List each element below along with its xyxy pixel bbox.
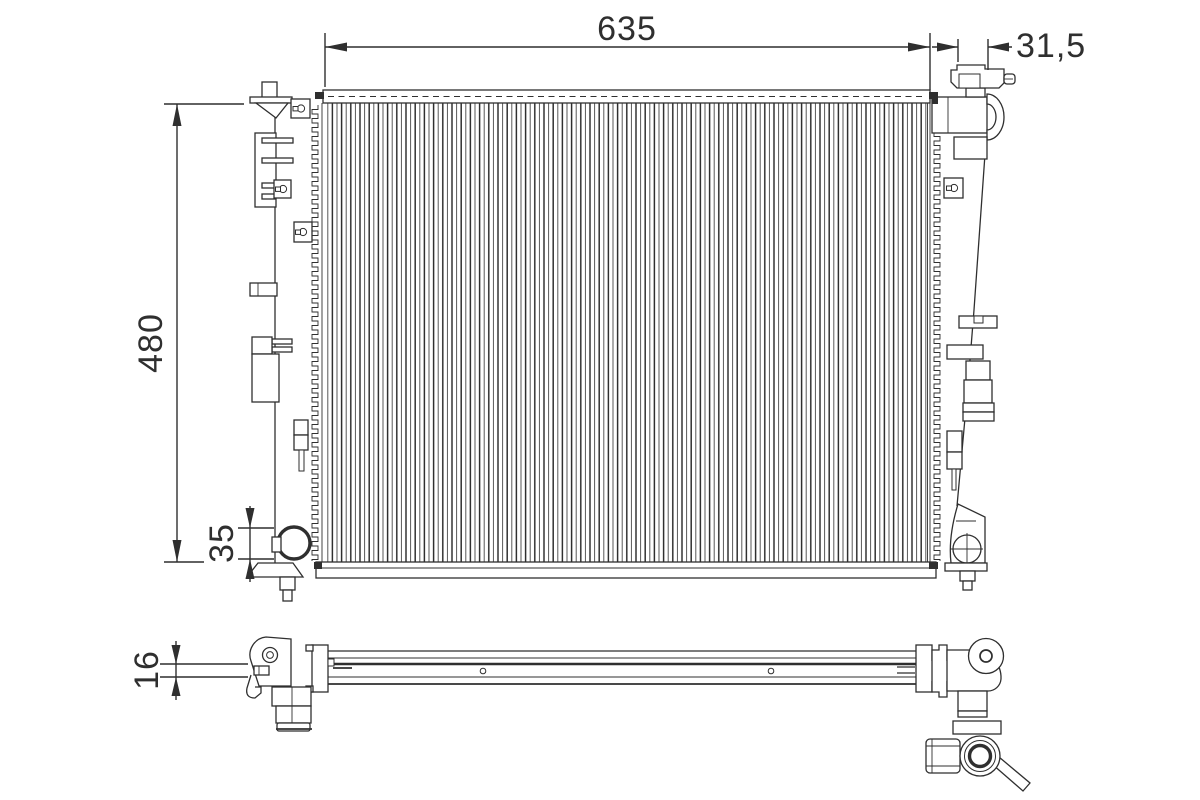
end-cap: [312, 645, 328, 692]
right-tank: [932, 65, 1015, 590]
bottom-profile-view: [247, 637, 1030, 791]
drain-tab: [272, 537, 281, 552]
drawing-canvas: 635 31,5 480 35: [0, 0, 1200, 800]
retaining-clip: [314, 562, 322, 569]
bottom-mount-screw: [945, 504, 987, 590]
drain-plug: [278, 527, 310, 559]
bottom-mount-pin-tip: [283, 590, 292, 601]
filler-cap: [951, 65, 1015, 97]
bleed-valve: [294, 420, 308, 471]
profile-left-end: [247, 637, 334, 731]
dimension-arrow: [908, 43, 930, 52]
front-view: [247, 65, 1015, 601]
end-cap: [916, 645, 932, 692]
dimension-arrow: [937, 43, 958, 52]
dimension-total-width: 635: [325, 10, 930, 90]
dimension-label-total-height: 480: [132, 313, 170, 373]
mount-clip: [944, 178, 963, 198]
core-fins: [327, 103, 928, 562]
retaining-clip: [315, 92, 324, 99]
valve-cylinder: [926, 739, 960, 773]
dimension-core-thickness: 16: [128, 641, 248, 700]
left-tank: [247, 82, 312, 601]
dimension-arrow: [173, 540, 182, 562]
dimension-label-drain-height: 35: [203, 523, 241, 563]
profile-bar: [328, 651, 916, 684]
mount-clip: [294, 222, 312, 242]
side-bracket: [255, 133, 293, 207]
dimension-arrow: [246, 508, 255, 528]
mount-eye: [969, 639, 1004, 674]
side-tab: [250, 283, 277, 296]
radiator-core: [314, 90, 938, 578]
dimension-label-total-width: 635: [597, 10, 657, 48]
bar-hole: [768, 668, 774, 674]
dimension-total-height: 480: [132, 104, 244, 562]
dimension-arrow: [988, 43, 1009, 52]
bottom-header: [316, 562, 936, 578]
left-side-plate: [312, 103, 322, 562]
mount-clip: [291, 99, 310, 118]
profile-right-end: [916, 639, 1030, 792]
dimension-label-filler-offset: 31,5: [1016, 27, 1086, 65]
dimension-arrow: [172, 677, 181, 696]
bottom-mount: [247, 563, 303, 577]
fork-bracket: [252, 337, 292, 402]
bottom-mount-pin: [280, 577, 295, 590]
top-mount-funnel: [256, 103, 288, 118]
hose-elbow: [987, 94, 1004, 140]
radiator-drawing: 635 31,5 480 35: [0, 0, 1200, 800]
dimension-filler-offset: 31,5: [932, 27, 1086, 70]
dimension-arrow: [172, 645, 181, 664]
inlet-pipe: [932, 94, 1004, 159]
dimension-arrow: [325, 43, 347, 52]
serration-right: [934, 105, 940, 561]
serration-left: [312, 105, 318, 561]
dimension-label-core-thickness: 16: [128, 650, 166, 690]
right-side-plate: [930, 103, 940, 562]
retaining-clip: [929, 562, 938, 569]
top-mount-pin: [262, 82, 277, 98]
connector-block: [272, 687, 311, 706]
filler-neck: [958, 691, 987, 711]
top-mount-bar: [250, 97, 292, 103]
bar-hole: [480, 668, 486, 674]
dimension-arrow: [173, 104, 182, 126]
